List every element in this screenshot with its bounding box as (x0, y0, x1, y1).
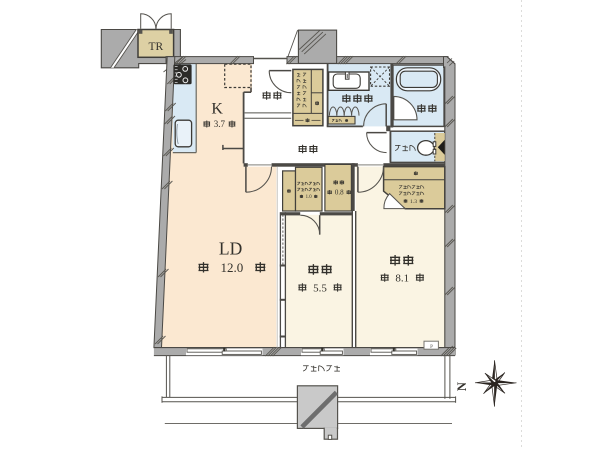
svg-text:12.0: 12.0 (221, 260, 244, 275)
svg-text:LD: LD (219, 238, 242, 258)
svg-text:1.3: 1.3 (410, 199, 417, 205)
svg-text:TR: TR (148, 41, 163, 53)
svg-text:8.1: 8.1 (395, 273, 409, 285)
svg-text:1.0: 1.0 (306, 195, 313, 200)
svg-text:3.7: 3.7 (214, 119, 226, 129)
svg-text:N: N (455, 382, 469, 391)
svg-text:5.5: 5.5 (313, 282, 327, 294)
svg-text:K: K (211, 100, 223, 117)
svg-text:P: P (430, 345, 433, 350)
svg-text:0.8: 0.8 (335, 189, 344, 197)
